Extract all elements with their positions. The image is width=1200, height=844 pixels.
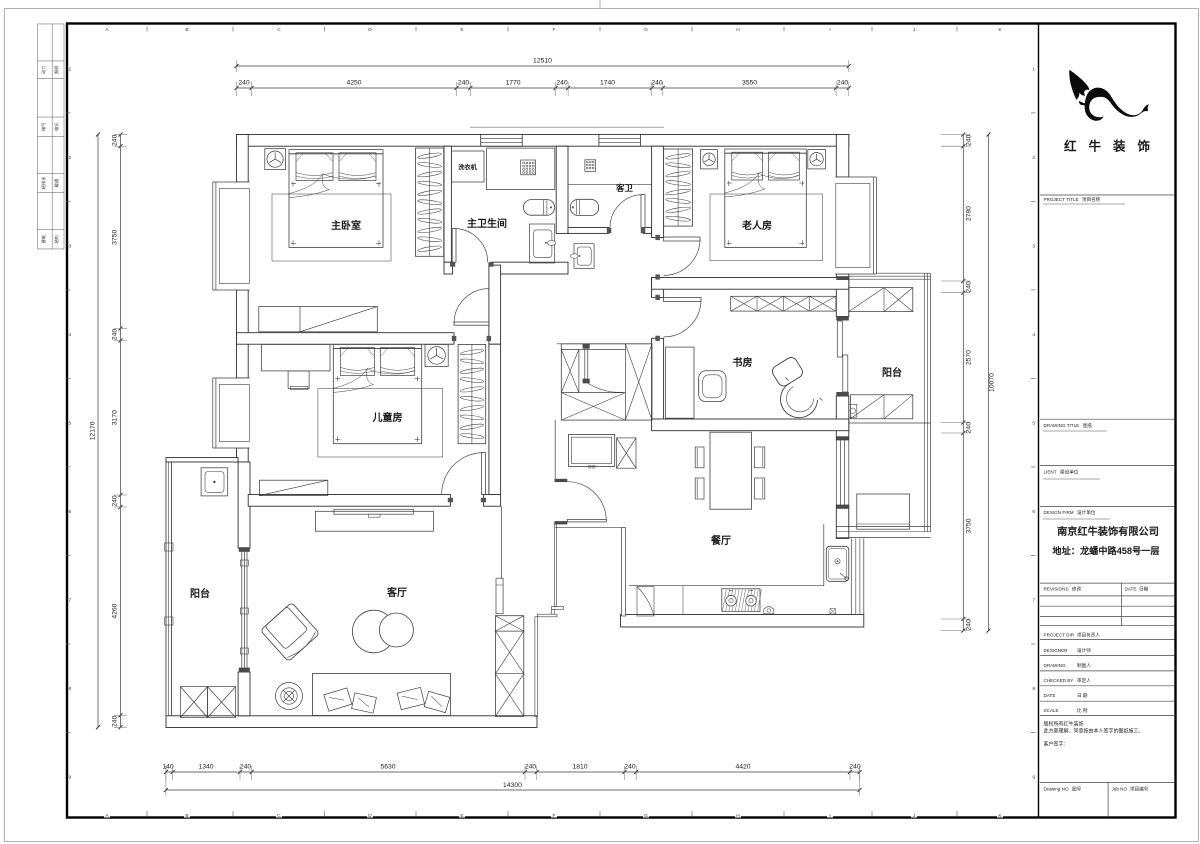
svg-text:7: 7 xyxy=(68,598,71,604)
svg-text:I: I xyxy=(829,813,830,819)
svg-text:书房: 书房 xyxy=(733,356,753,369)
svg-text:5: 5 xyxy=(68,421,71,427)
svg-text:阳台: 阳台 xyxy=(190,587,210,600)
svg-text:D: D xyxy=(368,27,372,33)
svg-text:4250: 4250 xyxy=(346,80,361,87)
svg-text:C: C xyxy=(277,813,281,819)
svg-text:240: 240 xyxy=(238,80,250,87)
svg-text:主卧室: 主卧室 xyxy=(331,219,361,232)
svg-text:3170: 3170 xyxy=(112,410,119,425)
svg-text:CHECKED BY: CHECKED BY xyxy=(1044,678,1074,683)
svg-text:结构: 结构 xyxy=(53,235,60,243)
svg-text:12170: 12170 xyxy=(90,421,97,440)
svg-text:DESIGNER: DESIGNER xyxy=(1044,648,1069,653)
svg-text:洗衣机: 洗衣机 xyxy=(458,164,477,172)
svg-text:B: B xyxy=(185,813,188,819)
svg-text:4420: 4420 xyxy=(735,764,750,771)
svg-text:240: 240 xyxy=(525,764,537,771)
svg-text:240: 240 xyxy=(966,619,973,631)
svg-text:审定人: 审定人 xyxy=(1077,677,1091,684)
svg-text:9: 9 xyxy=(1032,775,1035,781)
svg-text:建筑: 建筑 xyxy=(40,234,47,243)
svg-text:E: E xyxy=(460,27,463,33)
svg-text:3: 3 xyxy=(68,244,71,250)
svg-text:8: 8 xyxy=(68,686,71,692)
svg-text:5630: 5630 xyxy=(380,764,395,771)
svg-text:F: F xyxy=(553,813,556,819)
svg-text:制图人: 制图人 xyxy=(1077,662,1091,669)
svg-text:红牛装饰: 红牛装饰 xyxy=(1064,139,1162,154)
svg-text:客厅: 客厅 xyxy=(386,586,407,599)
svg-text:6: 6 xyxy=(1032,509,1035,515)
svg-text:LIENT: LIENT xyxy=(1044,470,1057,475)
svg-text:建设单位: 建设单位 xyxy=(1060,469,1079,476)
svg-text:DATE: DATE xyxy=(1125,587,1137,592)
svg-text:240: 240 xyxy=(651,80,663,87)
svg-text:140: 140 xyxy=(162,764,174,771)
svg-text:240: 240 xyxy=(112,134,119,146)
svg-text:240: 240 xyxy=(966,281,973,293)
svg-text:设计师: 设计师 xyxy=(1077,647,1091,654)
svg-text:SCALE: SCALE xyxy=(1044,708,1059,713)
svg-text:240: 240 xyxy=(624,764,636,771)
svg-text:3750: 3750 xyxy=(966,518,973,533)
svg-text:10070: 10070 xyxy=(989,373,996,392)
svg-text:4260: 4260 xyxy=(112,603,119,618)
svg-text:4: 4 xyxy=(68,332,71,338)
svg-text:修改: 修改 xyxy=(1072,586,1082,593)
svg-text:12510: 12510 xyxy=(533,58,552,65)
svg-text:240: 240 xyxy=(966,134,973,146)
svg-text:暖通: 暖通 xyxy=(53,178,60,187)
svg-text:4: 4 xyxy=(1032,332,1035,338)
svg-text:PROJECT DIR: PROJECT DIR xyxy=(1044,633,1075,638)
svg-text:F: F xyxy=(553,27,556,33)
svg-text:2: 2 xyxy=(1032,155,1035,161)
svg-text:电气: 电气 xyxy=(40,122,46,131)
svg-text:地址：龙蟠中路458号一层: 地址：龙蟠中路458号一层 xyxy=(1052,545,1159,556)
svg-text:240: 240 xyxy=(112,495,119,507)
svg-text:H: H xyxy=(736,813,740,819)
svg-text:南京红牛装饰有限公司: 南京红牛装饰有限公司 xyxy=(1057,525,1159,538)
svg-text:老人房: 老人房 xyxy=(741,219,772,232)
svg-text:7: 7 xyxy=(1032,598,1035,604)
svg-text:2780: 2780 xyxy=(966,206,973,221)
svg-text:比 例: 比 例 xyxy=(1077,707,1088,714)
svg-text:I: I xyxy=(829,27,830,33)
svg-text:D: D xyxy=(368,813,372,819)
svg-text:8: 8 xyxy=(1032,686,1035,692)
svg-text:E: E xyxy=(460,813,463,819)
svg-text:240: 240 xyxy=(966,422,973,434)
svg-text:DRAWING: DRAWING xyxy=(1044,663,1066,668)
svg-text:REVISIONS: REVISIONS xyxy=(1044,587,1069,592)
svg-text:1340: 1340 xyxy=(198,764,213,771)
svg-text:项目编号: 项目编号 xyxy=(1130,786,1149,793)
svg-text:项目负责人: 项目负责人 xyxy=(1077,632,1100,639)
svg-text:DATE: DATE xyxy=(1044,693,1056,698)
svg-text:5: 5 xyxy=(1032,421,1035,427)
svg-text:240: 240 xyxy=(556,80,568,87)
svg-text:G: G xyxy=(644,813,648,819)
svg-text:客卫: 客卫 xyxy=(615,183,634,193)
svg-text:电讯: 电讯 xyxy=(53,122,60,131)
svg-text:1810: 1810 xyxy=(572,764,587,771)
svg-text:G: G xyxy=(644,27,648,33)
svg-text:240: 240 xyxy=(112,715,119,727)
svg-text:设计单位: 设计单位 xyxy=(1077,509,1096,516)
svg-text:14300: 14300 xyxy=(503,782,522,789)
svg-text:H: H xyxy=(736,27,740,33)
svg-text:Job NO: Job NO xyxy=(1112,787,1128,792)
svg-text:1: 1 xyxy=(68,67,71,73)
svg-text:给排水: 给排水 xyxy=(40,176,47,189)
svg-text:主卫生间: 主卫生间 xyxy=(467,217,507,230)
svg-text:2570: 2570 xyxy=(966,350,973,365)
svg-text:PROJECT TITLE: PROJECT TITLE xyxy=(1044,197,1079,202)
svg-text:动力: 动力 xyxy=(40,66,47,74)
svg-text:Drawing NO: Drawing NO xyxy=(1044,787,1069,792)
svg-text:240: 240 xyxy=(458,80,470,87)
svg-text:DRAWING TITLE: DRAWING TITLE xyxy=(1044,423,1080,428)
svg-text:客户签字：: 客户签字： xyxy=(1044,741,1069,748)
svg-text:9: 9 xyxy=(68,775,71,781)
svg-text:1770: 1770 xyxy=(505,80,520,87)
svg-text:DESIGN FIRM: DESIGN FIRM xyxy=(1044,510,1074,515)
svg-text:2: 2 xyxy=(68,155,71,161)
svg-text:此方案理解。同意按由本人签字的图纸施工。: 此方案理解。同意按由本人签字的图纸施工。 xyxy=(1044,728,1144,735)
svg-text:240: 240 xyxy=(112,329,119,341)
svg-text:餐厅: 餐厅 xyxy=(710,534,731,547)
svg-text:3550: 3550 xyxy=(742,80,757,87)
svg-text:图名: 图名 xyxy=(1083,422,1092,429)
svg-text:6: 6 xyxy=(68,509,71,515)
svg-text:C: C xyxy=(277,27,281,33)
svg-text:3: 3 xyxy=(1032,244,1035,250)
svg-text:3750: 3750 xyxy=(112,230,119,245)
svg-text:240: 240 xyxy=(849,764,861,771)
svg-text:240: 240 xyxy=(240,764,252,771)
svg-text:版权所有红牛装饰: 版权所有红牛装饰 xyxy=(1044,721,1084,728)
svg-text:B: B xyxy=(185,27,188,33)
svg-text:项目名称: 项目名称 xyxy=(1082,196,1101,203)
svg-text:240: 240 xyxy=(837,80,849,87)
svg-text:儿童房: 儿童房 xyxy=(372,411,403,424)
svg-text:1740: 1740 xyxy=(600,80,615,87)
svg-text:阳台: 阳台 xyxy=(882,366,902,379)
svg-text:1: 1 xyxy=(1032,67,1035,73)
